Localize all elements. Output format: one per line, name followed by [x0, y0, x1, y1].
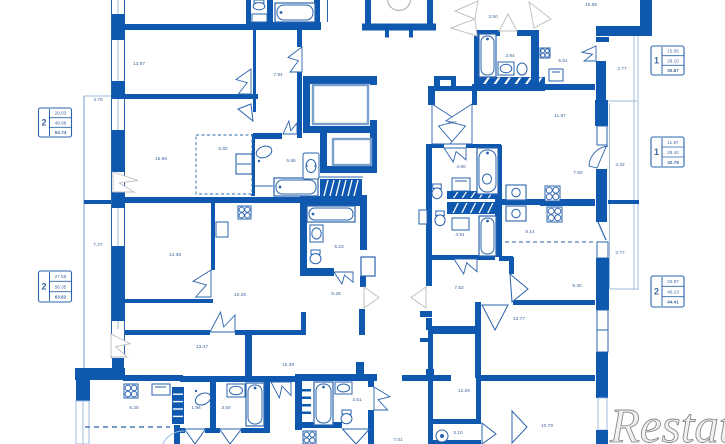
svg-text:8.14: 8.14: [525, 229, 535, 235]
svg-text:30.87: 30.87: [667, 68, 679, 73]
svg-text:3.50: 3.50: [488, 14, 498, 20]
svg-text:3.10: 3.10: [453, 430, 463, 436]
svg-text:1: 1: [654, 147, 659, 157]
svg-text:48.98: 48.98: [55, 120, 67, 125]
svg-text:3.67: 3.67: [447, 120, 457, 126]
svg-text:4.61: 4.61: [352, 397, 362, 403]
svg-text:53.74: 53.74: [55, 130, 67, 135]
svg-text:4.75: 4.75: [93, 97, 103, 103]
svg-text:15.66: 15.66: [155, 156, 167, 162]
svg-text:7.01: 7.01: [393, 437, 403, 443]
svg-text:7.52: 7.52: [454, 285, 464, 291]
svg-text:7.27: 7.27: [93, 242, 103, 248]
svg-text:5.28: 5.28: [331, 291, 341, 297]
svg-text:11.97: 11.97: [667, 140, 679, 145]
svg-text:5.86: 5.86: [286, 158, 296, 164]
svg-text:56.35: 56.35: [55, 284, 67, 289]
svg-text:2.77: 2.77: [617, 66, 627, 72]
svg-text:29.03: 29.03: [55, 111, 67, 116]
svg-text:28.10: 28.10: [667, 58, 679, 63]
svg-text:1: 1: [654, 56, 659, 66]
svg-text:7.92: 7.92: [573, 170, 583, 176]
svg-text:27.55: 27.55: [55, 274, 67, 279]
svg-text:Restate: Restate: [609, 398, 725, 444]
svg-text:5.51: 5.51: [558, 58, 568, 64]
svg-text:44.41: 44.41: [667, 300, 679, 305]
svg-text:4.90: 4.90: [456, 164, 466, 170]
svg-text:28.40: 28.40: [667, 150, 679, 155]
svg-text:7.94: 7.94: [273, 72, 283, 78]
svg-text:15.65: 15.65: [667, 49, 679, 54]
svg-text:13.47: 13.47: [196, 344, 208, 350]
svg-text:4.91: 4.91: [455, 232, 465, 238]
svg-text:15.38: 15.38: [282, 362, 294, 368]
svg-text:12.06: 12.06: [458, 388, 470, 394]
svg-text:13.97: 13.97: [133, 61, 145, 67]
svg-text:22.97: 22.97: [667, 279, 679, 284]
svg-text:11.97: 11.97: [554, 113, 566, 119]
svg-text:3.60: 3.60: [221, 405, 231, 411]
svg-text:2: 2: [41, 118, 46, 128]
svg-text:40.13: 40.13: [667, 289, 679, 294]
svg-text:14.38: 14.38: [169, 252, 181, 258]
svg-text:63.62: 63.62: [55, 295, 67, 300]
svg-text:8.30: 8.30: [572, 283, 582, 289]
svg-text:10.79: 10.79: [541, 423, 553, 429]
svg-text:3.94: 3.94: [505, 53, 515, 59]
svg-text:15.65: 15.65: [585, 2, 597, 8]
svg-text:10.26: 10.26: [234, 292, 246, 298]
svg-text:13.77: 13.77: [513, 316, 525, 322]
svg-text:4.32: 4.32: [615, 162, 625, 168]
svg-text:2: 2: [41, 282, 46, 292]
svg-text:2: 2: [654, 287, 659, 297]
svg-text:5.82: 5.82: [218, 146, 228, 152]
svg-text:3.77: 3.77: [615, 250, 625, 256]
svg-text:6.25: 6.25: [129, 405, 139, 411]
svg-text:32.78: 32.78: [667, 160, 679, 165]
svg-text:5.23: 5.23: [334, 244, 344, 250]
svg-text:1.96: 1.96: [191, 405, 201, 411]
